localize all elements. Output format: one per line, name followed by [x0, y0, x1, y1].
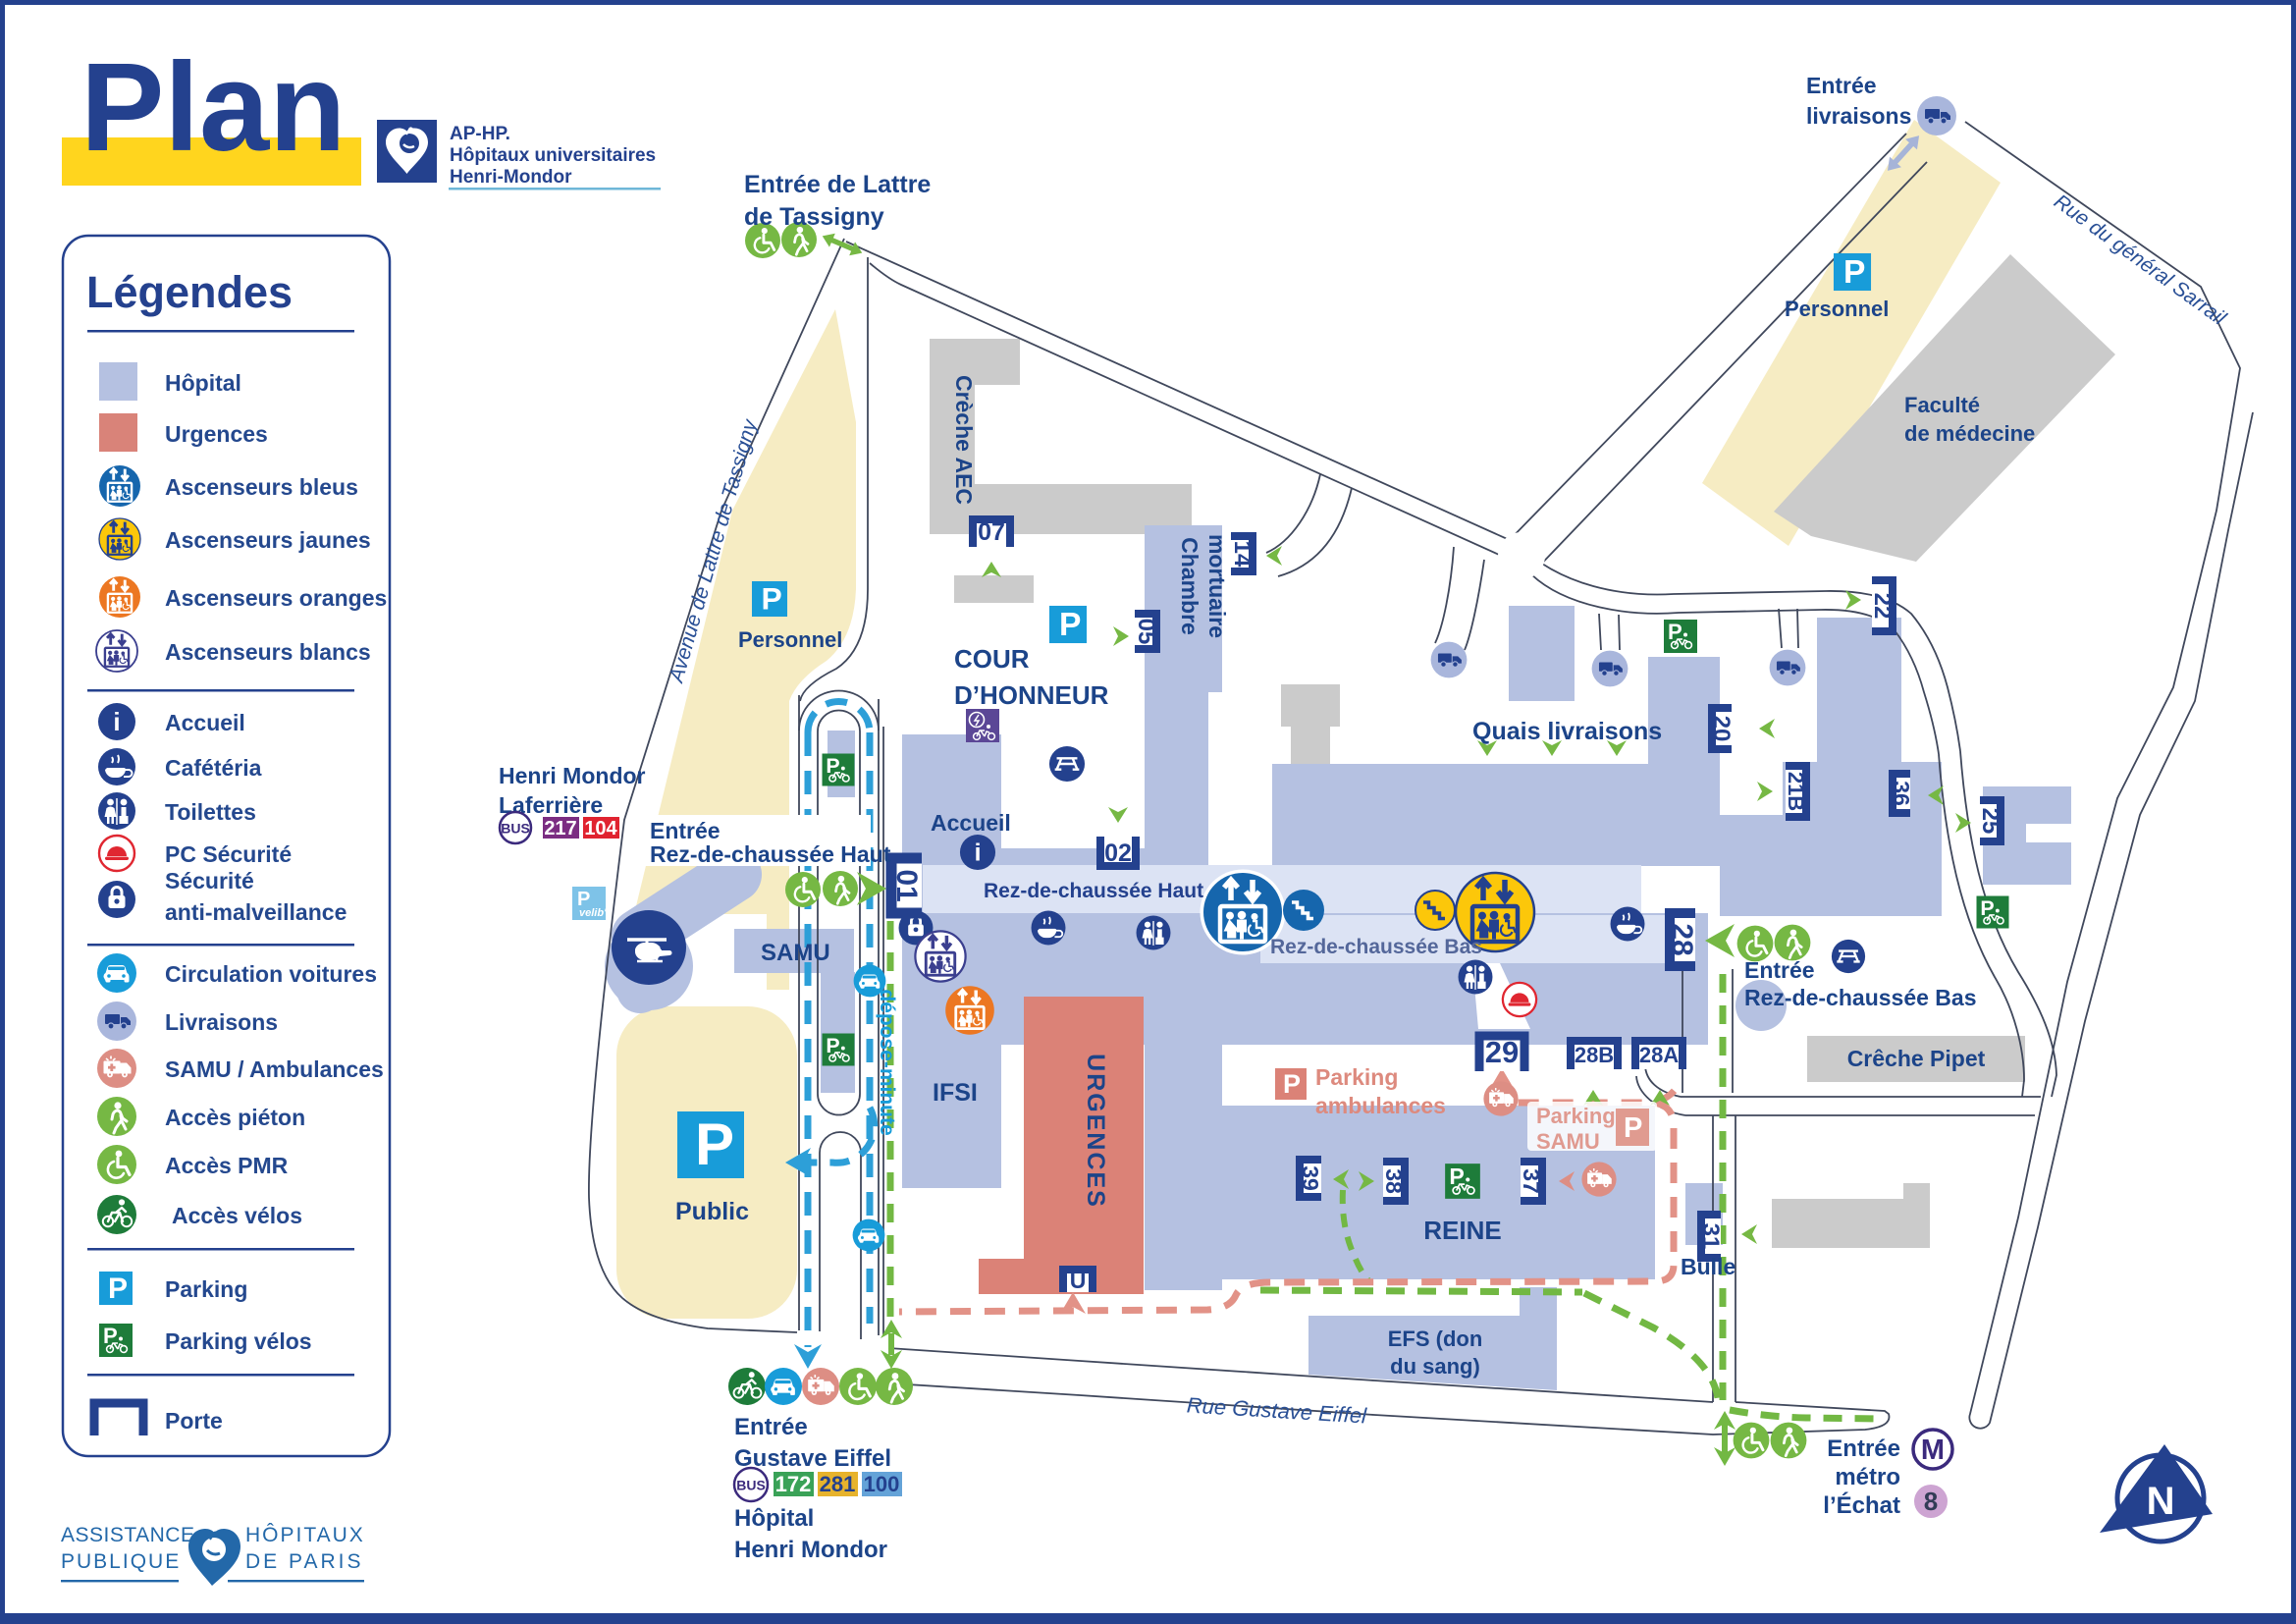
svg-text:ambulances: ambulances — [1315, 1093, 1446, 1118]
svg-text:28A: 28A — [1639, 1043, 1679, 1067]
svg-text:39: 39 — [1298, 1165, 1323, 1191]
svg-text:COUR: COUR — [954, 644, 1030, 674]
svg-text:07: 07 — [978, 518, 1005, 546]
svg-text:Faculté: Faculté — [1904, 393, 1980, 417]
svg-text:de médecine: de médecine — [1904, 421, 2035, 446]
svg-text:Rez-de-chaussée Bas: Rez-de-chaussée Bas — [1270, 936, 1482, 958]
svg-text:Henri-Mondor: Henri-Mondor — [450, 167, 572, 188]
svg-text:mortuaire: mortuaire — [1204, 534, 1230, 638]
svg-text:Hôpitaux universitaires: Hôpitaux universitaires — [450, 145, 656, 166]
svg-text:05: 05 — [1133, 619, 1159, 645]
svg-text:Rez-de-chaussée Haut: Rez-de-chaussée Haut — [984, 880, 1203, 902]
svg-text:Parking: Parking — [1536, 1104, 1616, 1128]
svg-text:Ascenseurs jaunes: Ascenseurs jaunes — [165, 527, 371, 553]
svg-text:Ascenseurs bleus: Ascenseurs bleus — [165, 474, 358, 500]
svg-text:Accès piéton: Accès piéton — [165, 1105, 305, 1130]
svg-text:Plan: Plan — [80, 37, 346, 178]
svg-text:Accueil: Accueil — [931, 810, 1011, 836]
svg-text:Personnel: Personnel — [1785, 297, 1889, 321]
svg-text:PUBLIQUE: PUBLIQUE — [61, 1550, 181, 1573]
svg-text:Rez-de-chaussée Haut: Rez-de-chaussée Haut — [650, 841, 891, 867]
svg-text:BUS: BUS — [736, 1478, 766, 1493]
svg-text:Légendes: Légendes — [86, 267, 293, 317]
svg-text:D’HONNEUR: D’HONNEUR — [954, 680, 1109, 710]
svg-text:Quais livraisons: Quais livraisons — [1472, 718, 1662, 745]
svg-text:20: 20 — [1708, 716, 1735, 742]
svg-text:Urgences: Urgences — [165, 421, 268, 447]
svg-text:Gustave Eiffel: Gustave Eiffel — [734, 1445, 891, 1472]
svg-text:dépose-minute: dépose-minute — [876, 989, 898, 1135]
svg-text:Accès PMR: Accès PMR — [165, 1153, 289, 1178]
svg-text:AP-HP.: AP-HP. — [450, 124, 510, 144]
svg-text:U: U — [1070, 1268, 1087, 1293]
svg-text:de Tassigny: de Tassigny — [744, 203, 884, 231]
svg-text:SAMU: SAMU — [761, 940, 830, 966]
svg-text:URGENCES: URGENCES — [1082, 1054, 1109, 1209]
svg-text:Entrée: Entrée — [1827, 1435, 1900, 1462]
svg-text:Bulle: Bulle — [1681, 1254, 1735, 1279]
svg-text:Ascenseurs oranges: Ascenseurs oranges — [165, 585, 387, 611]
svg-text:Parking: Parking — [165, 1276, 247, 1302]
svg-text:28B: 28B — [1575, 1043, 1614, 1067]
svg-text:Henri Mondor: Henri Mondor — [499, 763, 646, 788]
svg-text:livraisons: livraisons — [1806, 103, 1911, 129]
svg-text:21B: 21B — [1784, 772, 1808, 811]
svg-text:100: 100 — [864, 1472, 900, 1496]
svg-text:P: P — [1283, 1069, 1301, 1099]
svg-text:25: 25 — [1977, 808, 2003, 835]
svg-text:14: 14 — [1229, 541, 1255, 568]
svg-text:velib': velib' — [579, 907, 607, 919]
svg-text:Porte: Porte — [165, 1408, 223, 1434]
svg-text:l’Échat: l’Échat — [1823, 1491, 1900, 1519]
svg-text:SAMU / Ambulances: SAMU / Ambulances — [165, 1056, 384, 1082]
svg-text:8: 8 — [1924, 1487, 1938, 1516]
svg-text:DE PARIS: DE PARIS — [245, 1550, 363, 1573]
svg-text:ASSISTANCE: ASSISTANCE — [61, 1524, 194, 1546]
svg-text:Henri Mondor: Henri Mondor — [734, 1537, 887, 1563]
svg-text:métro: métro — [1835, 1464, 1900, 1490]
svg-text:37: 37 — [1519, 1168, 1544, 1194]
svg-text:Accueil: Accueil — [165, 710, 245, 735]
svg-text:Entrée: Entrée — [1806, 73, 1877, 98]
svg-text:Hôpital: Hôpital — [165, 370, 241, 396]
svg-text:Entrée: Entrée — [650, 818, 721, 843]
svg-text:Entrée: Entrée — [1744, 957, 1815, 983]
svg-text:Parking vélos: Parking vélos — [165, 1328, 312, 1354]
svg-text:M: M — [1921, 1435, 1945, 1466]
svg-text:HÔPITAUX: HÔPITAUX — [245, 1524, 365, 1546]
svg-text:02: 02 — [1104, 839, 1132, 867]
svg-text:217: 217 — [544, 818, 576, 839]
svg-text:Personnel: Personnel — [738, 627, 842, 652]
svg-text:du sang): du sang) — [1390, 1354, 1480, 1379]
svg-text:22: 22 — [1869, 593, 1896, 620]
svg-text:Public: Public — [675, 1198, 749, 1225]
svg-text:Circulation voitures: Circulation voitures — [165, 961, 377, 987]
svg-text:Parking: Parking — [1315, 1064, 1398, 1090]
svg-text:01: 01 — [890, 869, 923, 901]
svg-text:Ascenseurs blancs: Ascenseurs blancs — [165, 639, 371, 665]
svg-text:104: 104 — [584, 818, 617, 839]
svg-text:Crêche Pipet: Crêche Pipet — [1847, 1046, 1986, 1071]
svg-text:172: 172 — [775, 1472, 812, 1496]
svg-text:Accès vélos: Accès vélos — [172, 1203, 302, 1228]
svg-text:38: 38 — [1381, 1168, 1407, 1194]
svg-text:Crèche AEC: Crèche AEC — [951, 375, 977, 505]
svg-text:Entrée: Entrée — [734, 1414, 808, 1440]
svg-text:REINE: REINE — [1423, 1216, 1501, 1245]
svg-text:IFSI: IFSI — [933, 1079, 978, 1107]
svg-text:31: 31 — [1697, 1223, 1724, 1250]
svg-text:29: 29 — [1485, 1035, 1519, 1069]
svg-text:Hôpital: Hôpital — [734, 1505, 814, 1532]
svg-text:EFS (don: EFS (don — [1388, 1326, 1483, 1351]
svg-text:36: 36 — [1889, 781, 1914, 806]
svg-text:PC Sécurité: PC Sécurité — [165, 841, 292, 867]
svg-text:Livraisons: Livraisons — [165, 1009, 278, 1035]
svg-text:N: N — [2147, 1480, 2175, 1523]
svg-text:281: 281 — [820, 1472, 856, 1496]
svg-text:Entrée de Lattre: Entrée de Lattre — [744, 171, 931, 198]
svg-text:Rez-de-chaussée Bas: Rez-de-chaussée Bas — [1744, 985, 1977, 1010]
svg-text:BUS: BUS — [501, 821, 530, 837]
svg-text:P: P — [1624, 1112, 1642, 1144]
svg-text:28: 28 — [1666, 923, 1698, 955]
svg-text:anti-malveillance: anti-malveillance — [165, 899, 347, 925]
svg-text:Cafétéria: Cafétéria — [165, 755, 262, 781]
svg-text:Sécurité: Sécurité — [165, 868, 254, 893]
svg-text:Chambre: Chambre — [1177, 537, 1202, 635]
svg-text:SAMU: SAMU — [1536, 1129, 1600, 1154]
svg-text:Toilettes: Toilettes — [165, 799, 256, 825]
